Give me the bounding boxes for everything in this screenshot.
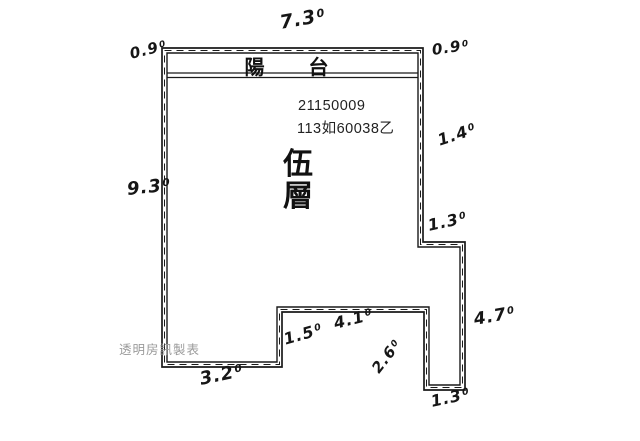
floor-label: 伍 層 [278, 149, 318, 213]
registry-number: 21150009 [298, 98, 365, 114]
watermark-text: 透明房訊製表 [119, 339, 200, 358]
floor-label-char-1: 伍 [278, 149, 318, 181]
case-number: 113如60038乙 [297, 117, 394, 138]
floor-label-char-2: 層 [278, 181, 318, 213]
balcony-label: 陽 台 [167, 51, 418, 80]
floor-plan-page: 陽 台 21150009 113如60038乙 伍 層 透明房訊製表 7.30 … [0, 0, 640, 441]
